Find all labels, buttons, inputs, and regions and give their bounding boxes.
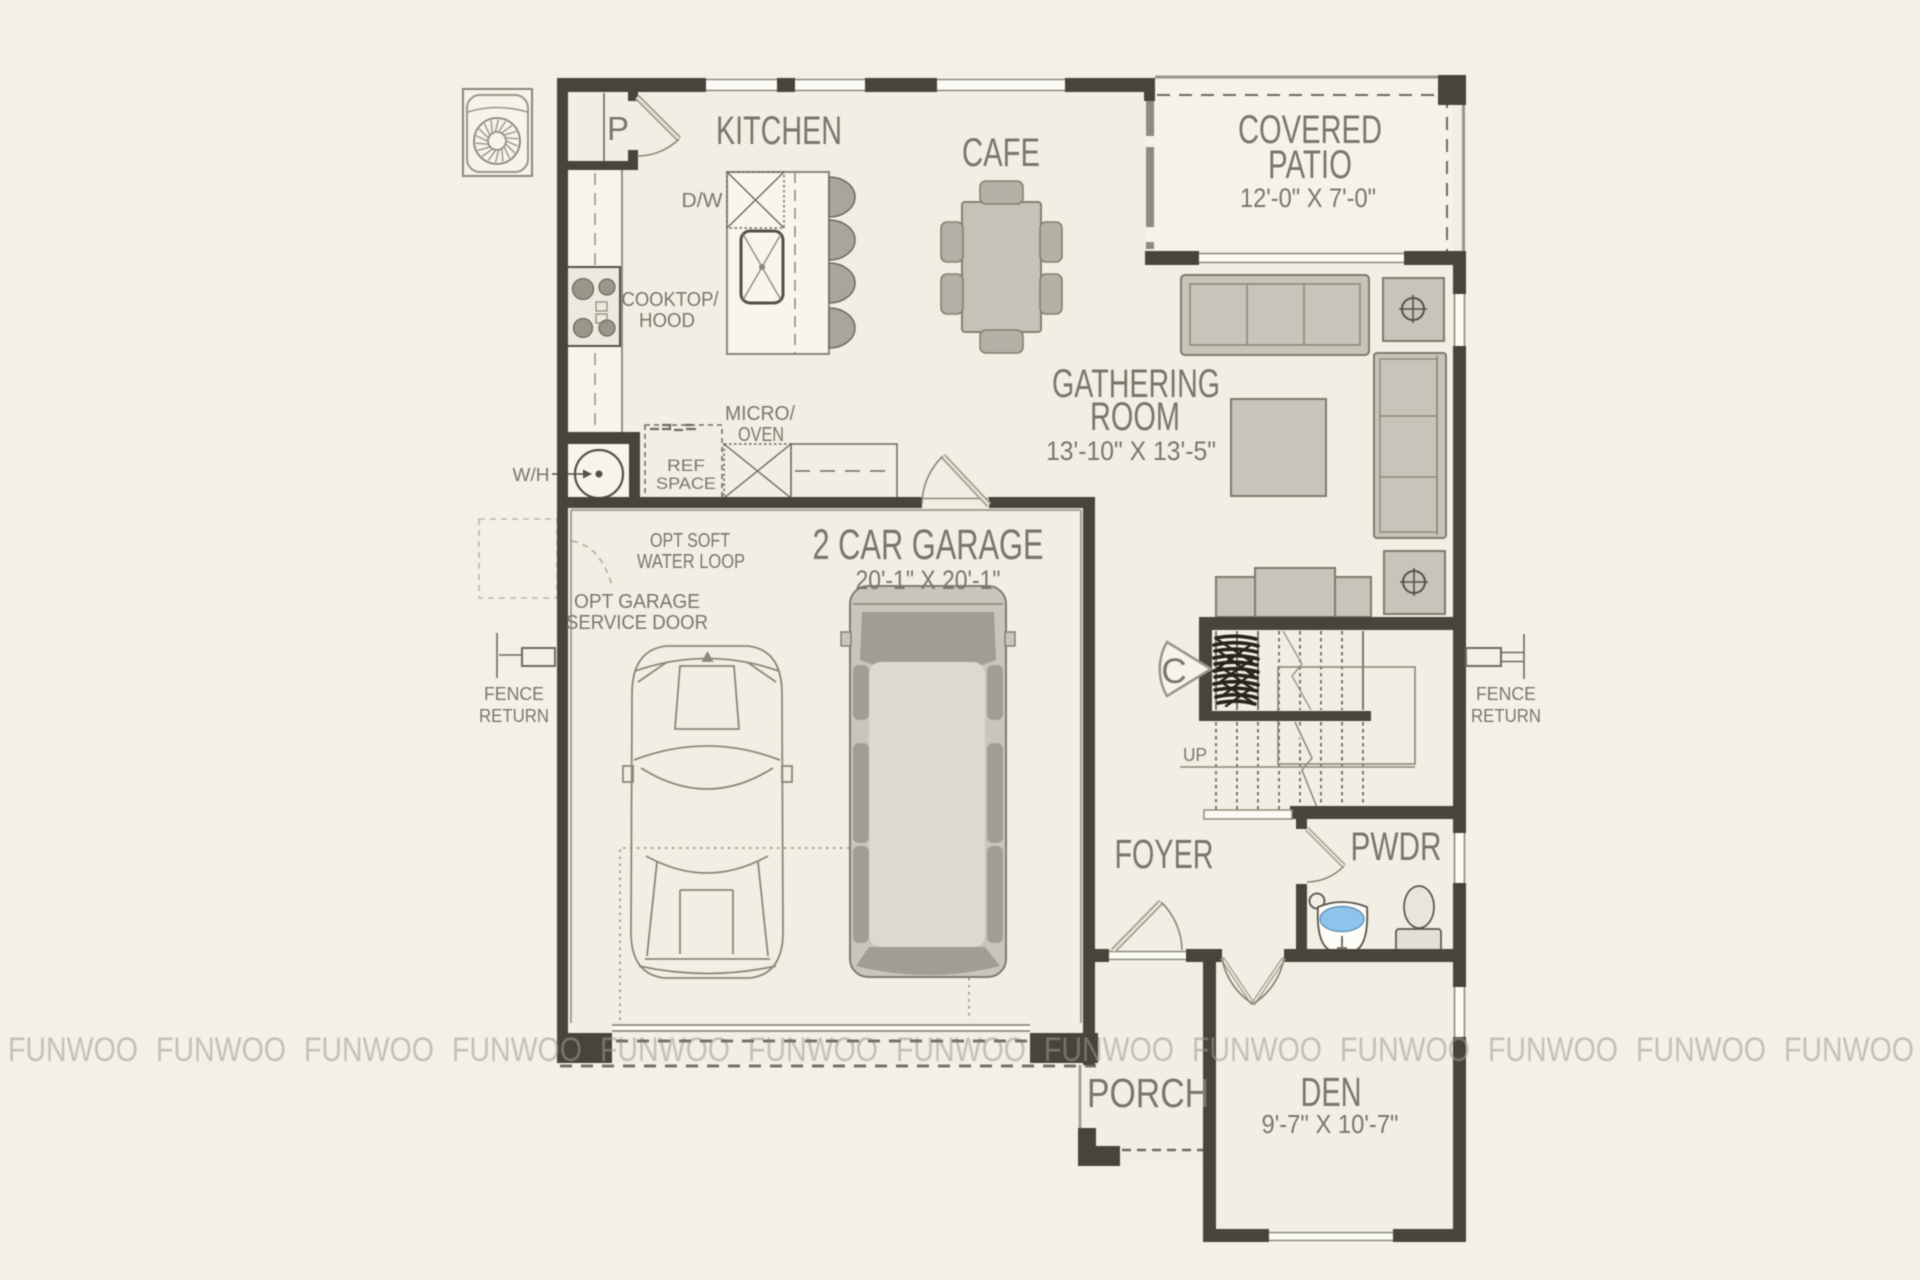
svg-text:FUNWOO: FUNWOO [1636,1031,1766,1069]
svg-text:UP: UP [1183,745,1207,765]
svg-text:PORCH: PORCH [1087,1070,1209,1116]
svg-text:OVEN: OVEN [738,424,784,446]
svg-text:FUNWOO: FUNWOO [304,1031,434,1069]
svg-text:ROOM: ROOM [1090,395,1180,439]
svg-text:OPT SOFT: OPT SOFT [650,530,730,552]
svg-text:FENCE: FENCE [484,684,544,704]
svg-text:MICRO/: MICRO/ [725,403,795,425]
svg-text:FUNWOO: FUNWOO [600,1031,730,1069]
svg-text:13'-10" X 13'-5": 13'-10" X 13'-5" [1046,436,1216,466]
svg-text:20'-1" X 20'-1": 20'-1" X 20'-1" [856,565,1001,595]
svg-text:FUNWOO: FUNWOO [748,1031,878,1069]
svg-text:COOKTOP/: COOKTOP/ [622,289,719,311]
svg-text:FUNWOO: FUNWOO [1784,1031,1914,1069]
svg-text:2 CAR GARAGE: 2 CAR GARAGE [813,521,1044,569]
svg-text:D/W: D/W [682,190,723,212]
svg-text:CAFE: CAFE [962,131,1040,175]
svg-text:FENCE: FENCE [1476,684,1536,704]
svg-text:9'-7" X 10'-7": 9'-7" X 10'-7" [1262,1109,1399,1139]
svg-text:OPT GARAGE: OPT GARAGE [574,591,700,613]
svg-text:FUNWOO: FUNWOO [156,1031,286,1069]
svg-text:RETURN: RETURN [479,706,549,726]
svg-text:RETURN: RETURN [1471,706,1541,726]
svg-text:FUNWOO: FUNWOO [1340,1031,1470,1069]
svg-text:PATIO: PATIO [1268,143,1352,187]
svg-text:12'-0" X 7'-0": 12'-0" X 7'-0" [1240,183,1376,213]
svg-text:SERVICE DOOR: SERVICE DOOR [566,612,708,634]
svg-text:SPACE: SPACE [656,474,716,493]
svg-text:FOYER: FOYER [1115,831,1214,877]
svg-text:WATER LOOP: WATER LOOP [637,551,745,573]
svg-text:P: P [607,110,629,147]
svg-text:KITCHEN: KITCHEN [716,109,842,153]
svg-text:W/H: W/H [513,465,550,485]
svg-text:HOOD: HOOD [639,310,695,332]
svg-text:C: C [1161,652,1186,691]
svg-text:PWDR: PWDR [1351,825,1442,869]
svg-text:FUNWOO: FUNWOO [1488,1031,1618,1069]
svg-text:FUNWOO: FUNWOO [896,1031,1026,1069]
svg-text:REF: REF [667,456,705,475]
svg-text:FUNWOO: FUNWOO [8,1031,138,1069]
